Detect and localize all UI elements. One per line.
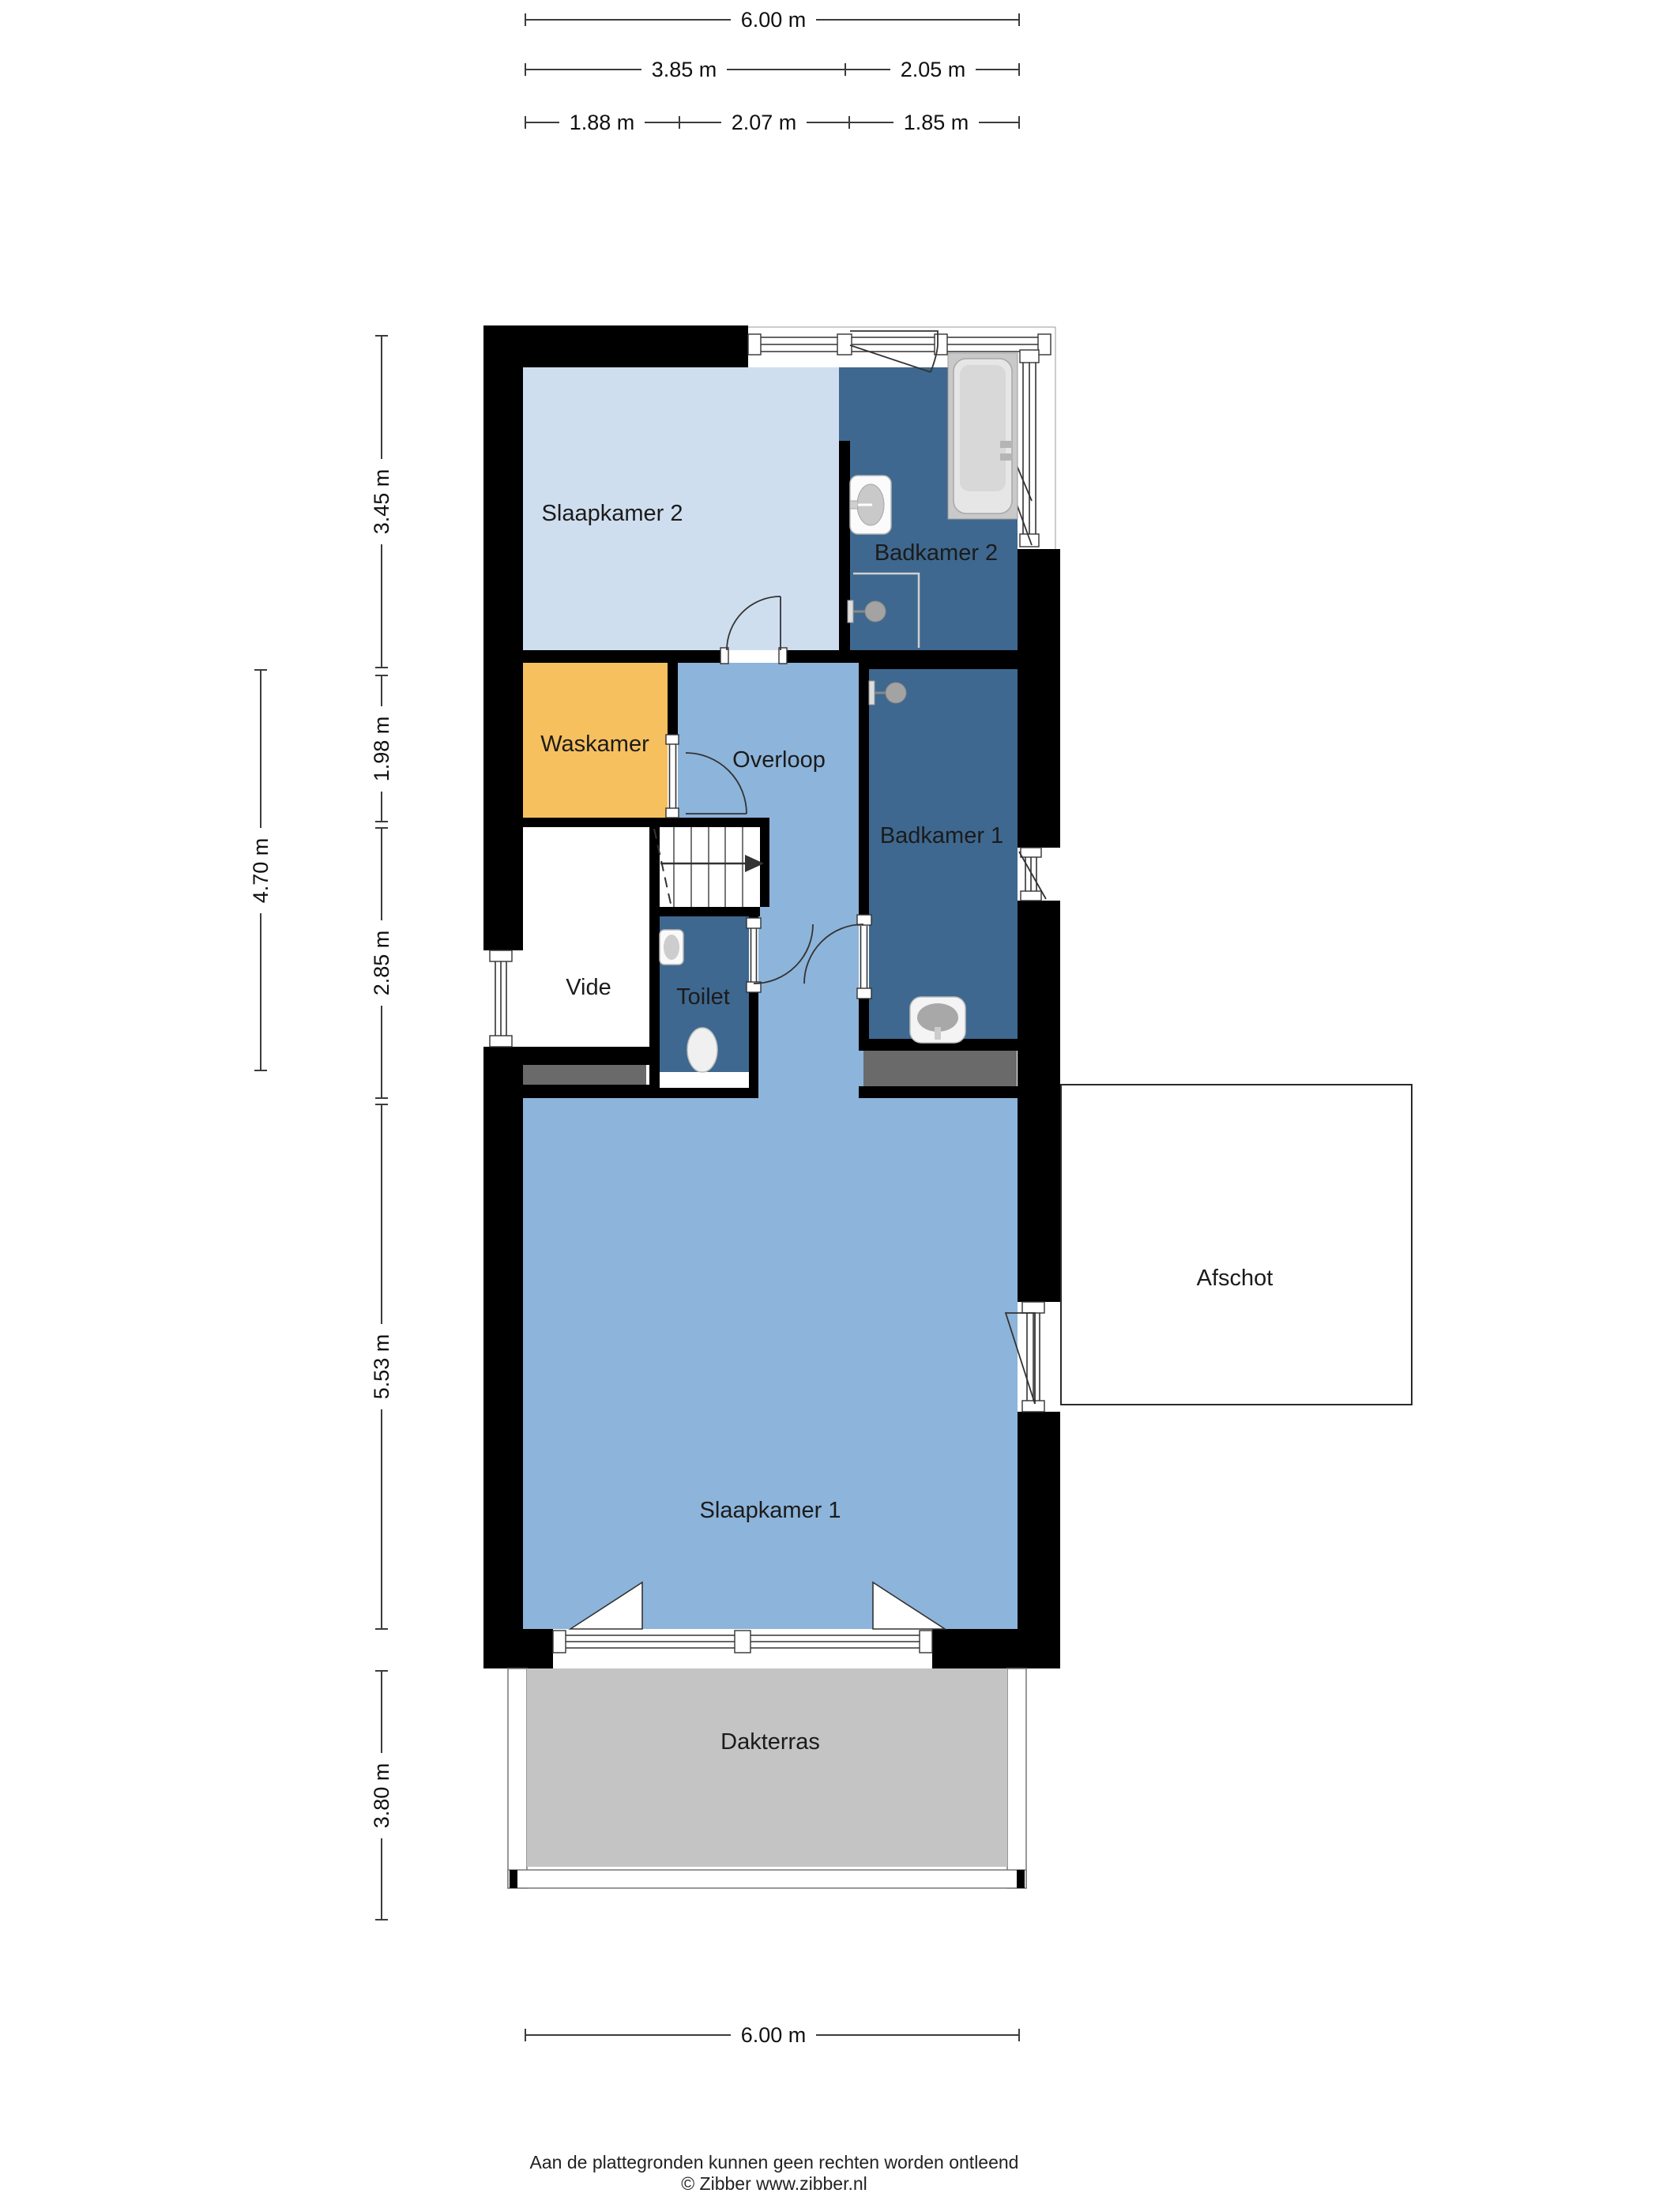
- dimension-label: 1.98 m: [370, 717, 393, 782]
- dimensions-left: 3.45 m 1.98 m 2.85 m 4.70 m 5.53 m 3.80 …: [249, 336, 393, 1920]
- room-dakterras-area: [527, 1668, 1007, 1867]
- vide-ledge: [523, 1065, 646, 1085]
- room-vide-area: [523, 827, 649, 1047]
- copyright-text: © Zibber www.zibber.nl: [681, 2173, 867, 2194]
- room-label-badkamer-1: Badkamer 1: [880, 823, 1003, 848]
- sink-icon: [850, 476, 891, 534]
- sink-icon: [660, 930, 683, 965]
- dimension-label: 3.85 m: [652, 58, 717, 81]
- dimension-label: 3.80 m: [370, 1763, 393, 1829]
- dimension-label: 3.45 m: [370, 469, 393, 535]
- terrace: [508, 1668, 1026, 1888]
- dimension-label: 2.05 m: [901, 58, 966, 81]
- dimension-bottom: 6.00 m: [525, 2023, 1019, 2047]
- badkamer-1-ledge: [863, 1051, 1017, 1086]
- stairs-area: [660, 827, 760, 907]
- toilet-icon: [910, 997, 965, 1043]
- floor-plan-canvas: Slaapkamer 2 Badkamer 2 Waskamer Overloo…: [0, 0, 1659, 2212]
- dimensions-top: 6.00 m 3.85 m 2.05 m 1.88 m 2.07 m 1.85 …: [525, 8, 1019, 134]
- room-label-afschot: Afschot: [1197, 1266, 1273, 1291]
- room-label-slaapkamer-1: Slaapkamer 1: [700, 1498, 841, 1523]
- room-label-overloop: Overloop: [732, 747, 826, 773]
- dimension-label: 2.07 m: [732, 111, 797, 134]
- room-badkamer-1-area: [859, 663, 1018, 1039]
- dimension-label: 6.00 m: [741, 8, 807, 32]
- dimension-label: 2.85 m: [370, 931, 393, 996]
- room-label-slaapkamer-2: Slaapkamer 2: [542, 501, 683, 526]
- disclaimer-text: Aan de plattegronden kunnen geen rechten…: [530, 2152, 1019, 2172]
- room-slaapkamer-2-area: [523, 345, 839, 650]
- dimension-label: 6.00 m: [741, 2023, 807, 2047]
- room-label-vide: Vide: [566, 975, 611, 1000]
- room-label-dakterras: Dakterras: [720, 1729, 820, 1755]
- dimension-label: 5.53 m: [370, 1334, 393, 1400]
- afschot-outline: [1061, 1085, 1412, 1405]
- room-label-badkamer-2: Badkamer 2: [875, 540, 998, 566]
- room-slaapkamer-1-area: [523, 1098, 1018, 1629]
- dimension-label: 1.85 m: [904, 111, 969, 134]
- dimension-label: 4.70 m: [249, 838, 273, 904]
- bathtub-icon: [948, 353, 1018, 519]
- room-label-waskamer: Waskamer: [540, 732, 649, 757]
- dimension-label: 1.88 m: [570, 111, 635, 134]
- room-label-toilet: Toilet: [676, 984, 730, 1010]
- footer: Aan de plattegronden kunnen geen rechten…: [530, 2152, 1019, 2194]
